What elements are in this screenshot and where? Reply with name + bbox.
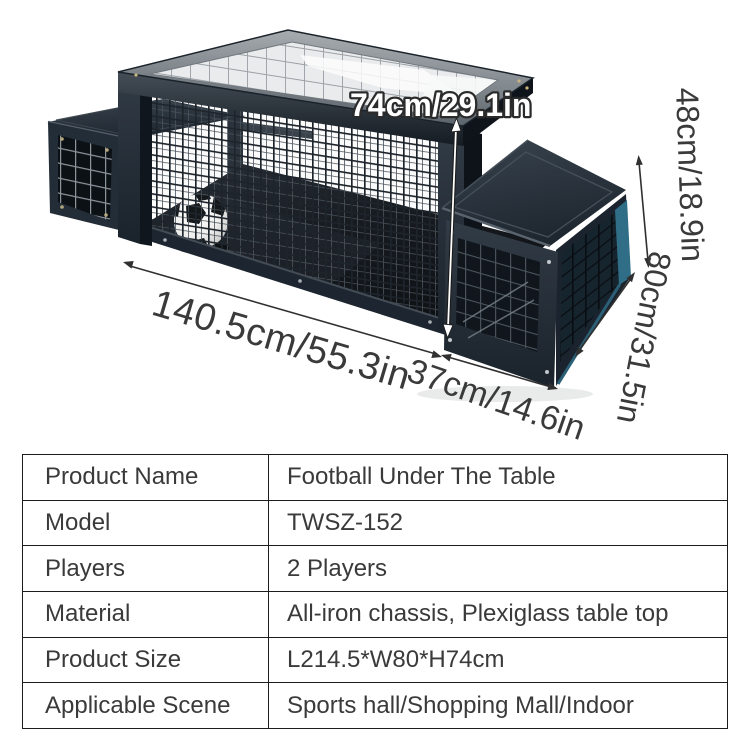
table-row: Product Size L214.5*W80*H74cm (23, 637, 728, 683)
spec-value: 2 Players (269, 546, 728, 592)
dimension-label-bench-height: 48cm/18.9in (669, 87, 711, 262)
spec-value: All-iron chassis, Plexiglass table top (269, 591, 728, 637)
spec-value: TWSZ-152 (269, 500, 728, 546)
spec-label: Material (23, 591, 269, 637)
table-row: Product Name Football Under The Table (23, 455, 728, 501)
table-leg-left (118, 72, 152, 246)
spec-label: Model (23, 500, 269, 546)
table-row: Model TWSZ-152 (23, 500, 728, 546)
spec-label: Product Name (23, 455, 269, 501)
spec-label: Applicable Scene (23, 683, 269, 729)
spec-label: Product Size (23, 637, 269, 683)
spec-value: L214.5*W80*H74cm (269, 637, 728, 683)
spec-label: Players (23, 546, 269, 592)
dimension-label-height: 74cm/29.1in (350, 87, 531, 123)
table-row: Players 2 Players (23, 546, 728, 592)
table-row: Applicable Scene Sports hall/Shopping Ma… (23, 683, 728, 729)
product-photo: 74cm/29.1in 48cm/18.9in 80cm/31.5in 140.… (0, 0, 750, 450)
spec-value: Football Under The Table (269, 455, 728, 501)
spec-value: Sports hall/Shopping Mall/Indoor (269, 683, 728, 729)
table-row: Material All-iron chassis, Plexiglass ta… (23, 591, 728, 637)
spec-table: Product Name Football Under The Table Mo… (22, 454, 728, 729)
